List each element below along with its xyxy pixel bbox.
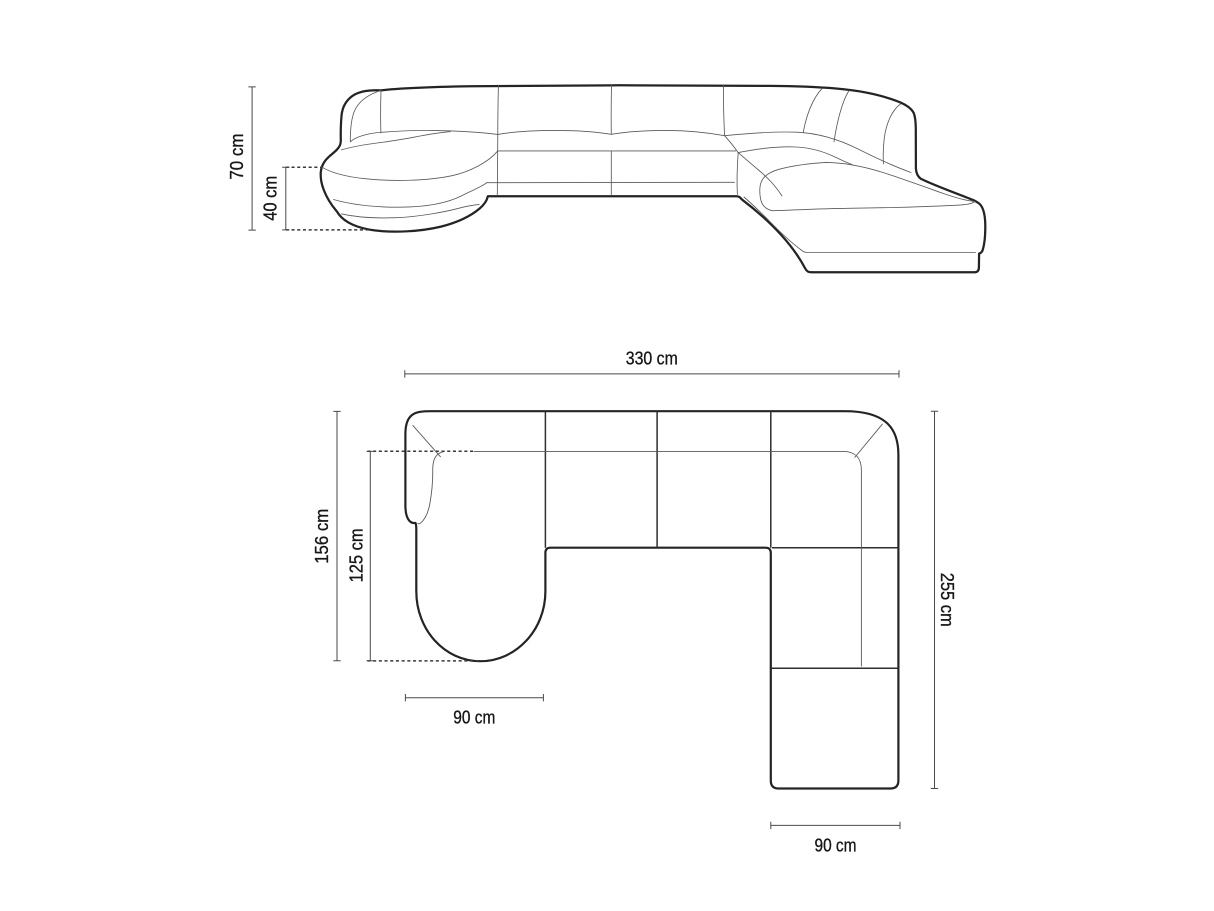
svg-text:255 cm: 255 cm [937, 573, 958, 627]
svg-text:40 cm: 40 cm [259, 176, 280, 221]
svg-text:330 cm: 330 cm [626, 348, 678, 369]
svg-text:125 cm: 125 cm [346, 528, 367, 582]
svg-text:156 cm: 156 cm [311, 509, 332, 564]
svg-text:90 cm: 90 cm [815, 834, 857, 855]
svg-text:70 cm: 70 cm [226, 134, 247, 180]
svg-text:90 cm: 90 cm [453, 707, 495, 728]
